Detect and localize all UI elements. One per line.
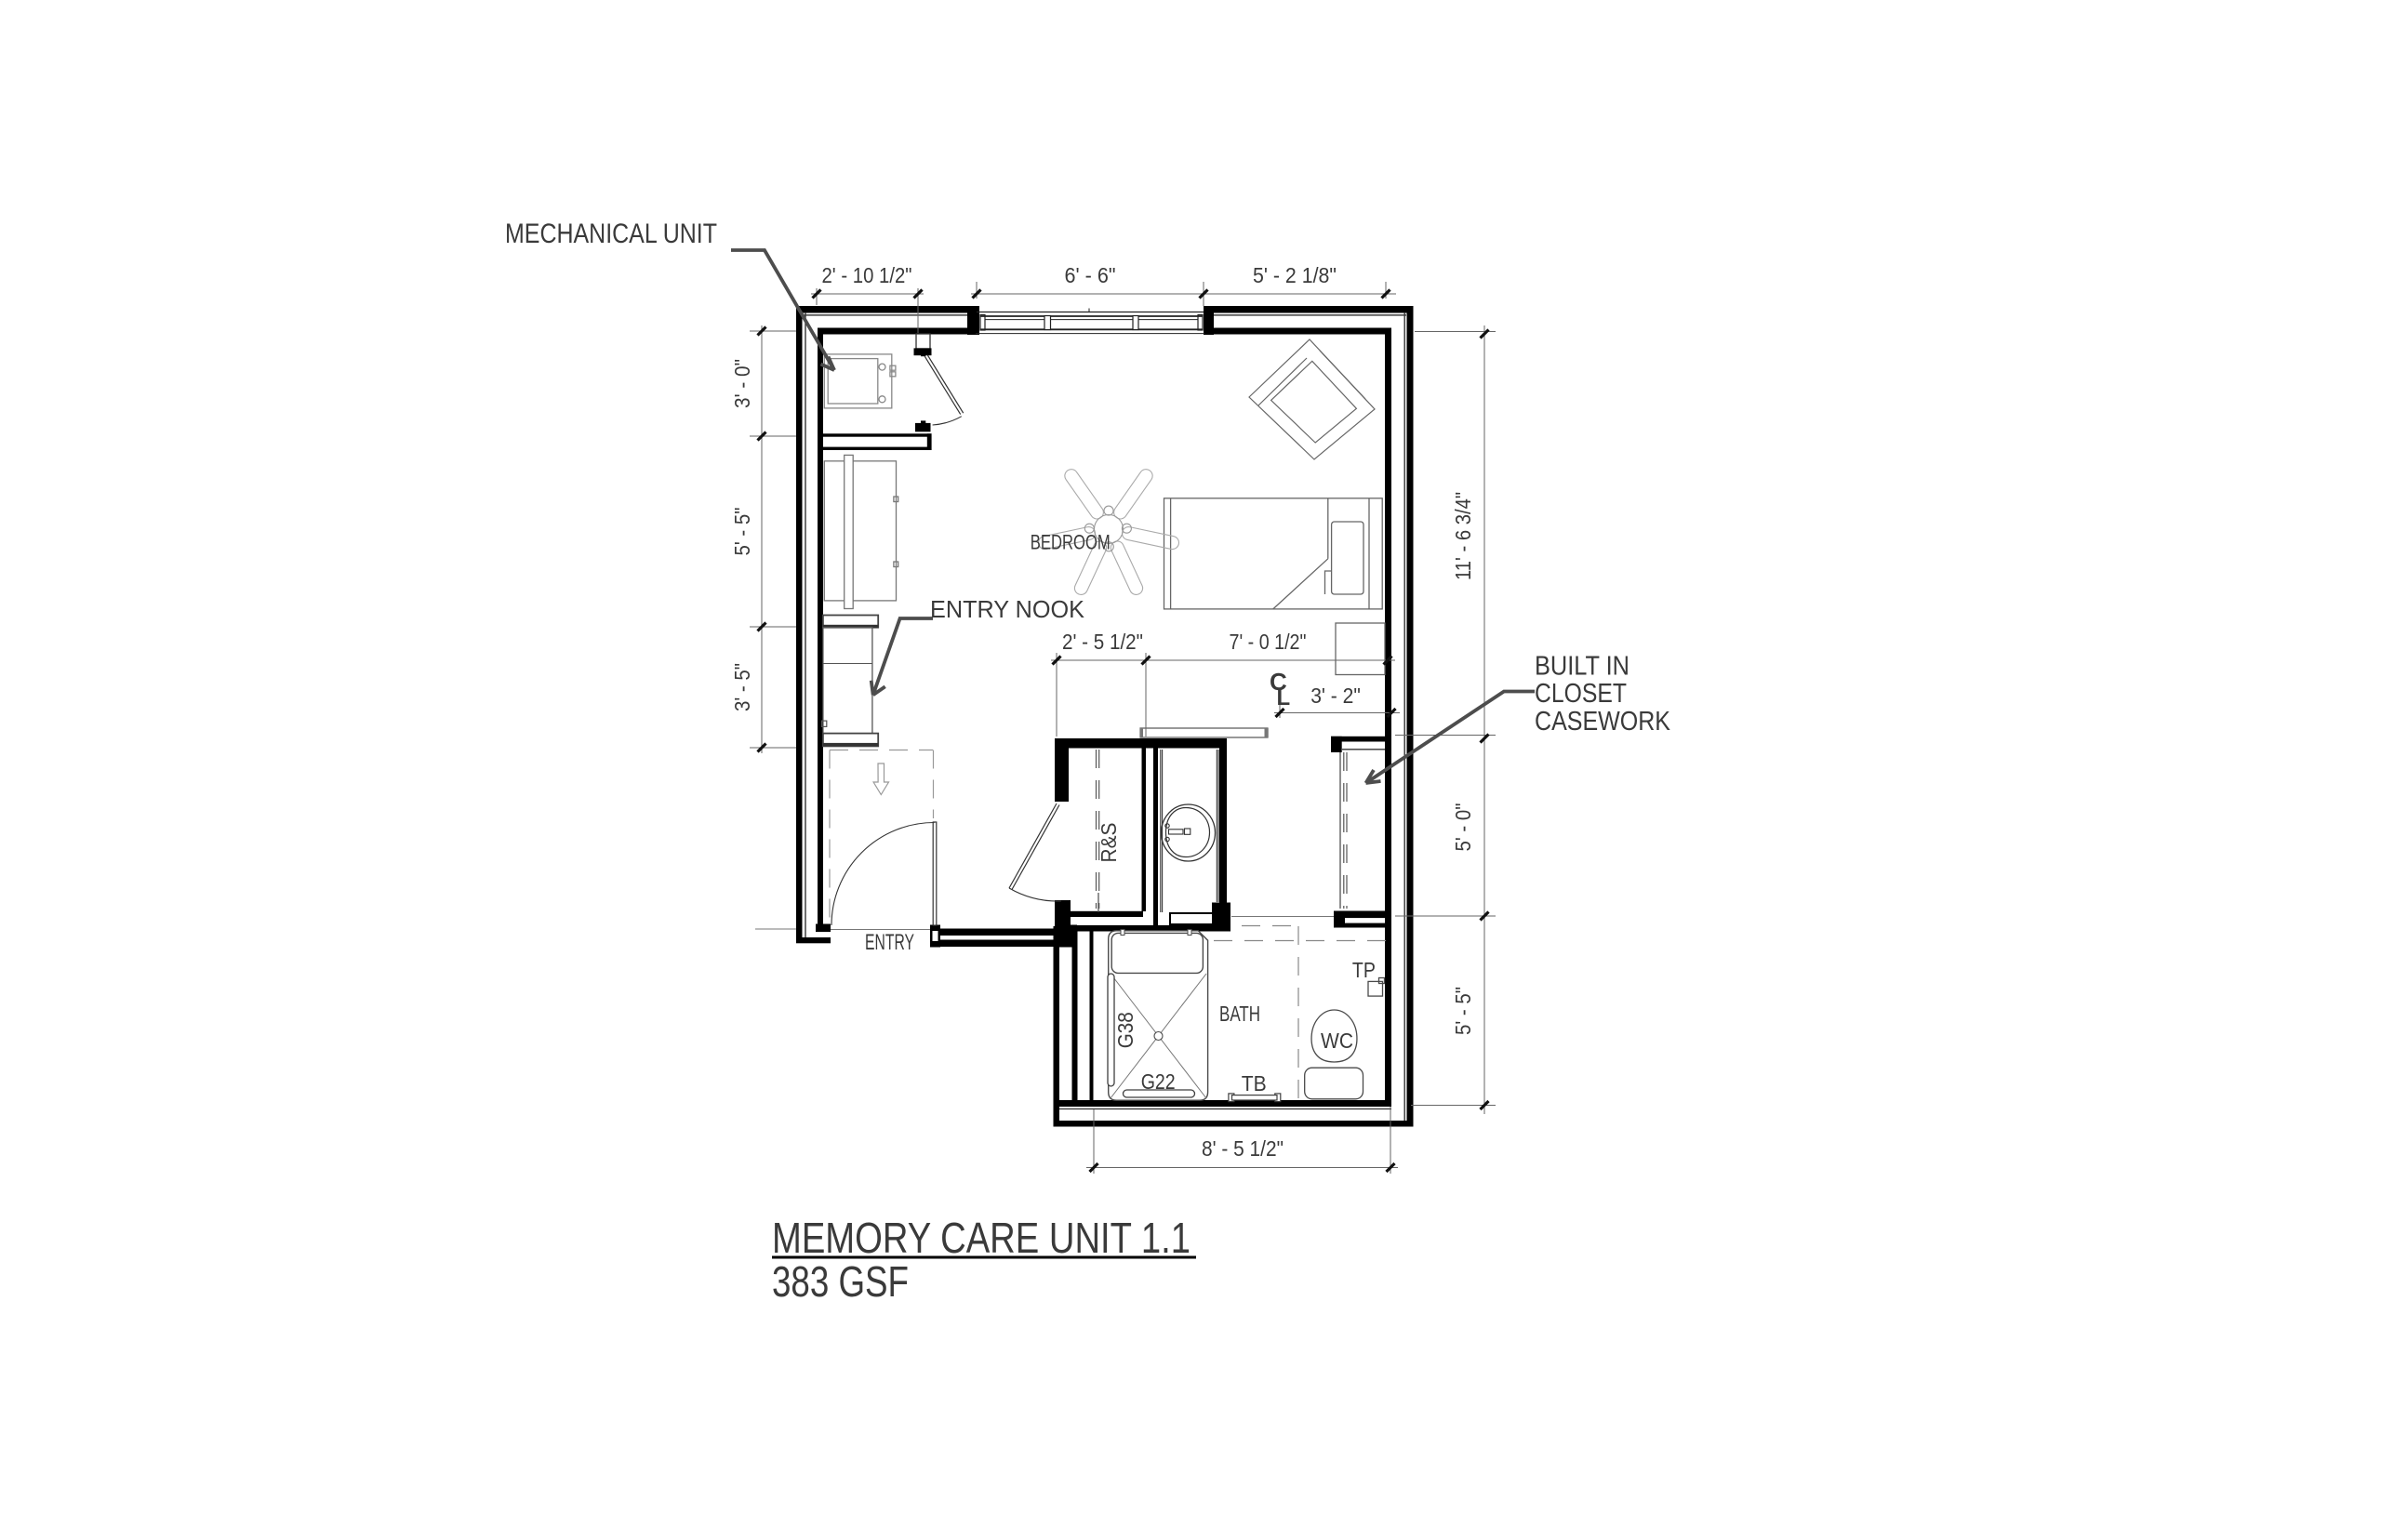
svg-text:5' - 5": 5' - 5" <box>730 508 754 556</box>
svg-text:TB: TB <box>1242 1071 1267 1095</box>
svg-text:3' - 2": 3' - 2" <box>1310 684 1361 708</box>
svg-text:6' - 6": 6' - 6" <box>1065 263 1116 287</box>
svg-text:BEDROOM: BEDROOM <box>1031 531 1111 554</box>
svg-text:3' - 5": 3' - 5" <box>730 663 754 711</box>
svg-text:5' - 5": 5' - 5" <box>1451 987 1475 1035</box>
svg-text:L: L <box>1277 685 1291 710</box>
svg-text:R&S: R&S <box>1097 823 1121 863</box>
svg-text:MEMORY CARE UNIT 1.1: MEMORY CARE UNIT 1.1 <box>772 1214 1190 1262</box>
svg-text:TP: TP <box>1352 958 1376 982</box>
svg-text:8' - 5 1/2": 8' - 5 1/2" <box>1202 1136 1284 1161</box>
svg-text:ENTRY: ENTRY <box>865 930 914 955</box>
svg-text:CASEWORK: CASEWORK <box>1535 707 1671 737</box>
svg-text:WC: WC <box>1321 1029 1353 1053</box>
svg-text:BUILT IN: BUILT IN <box>1535 652 1629 682</box>
svg-text:11' - 6 3/4": 11' - 6 3/4" <box>1451 492 1475 580</box>
svg-text:2' - 10 1/2": 2' - 10 1/2" <box>822 263 912 287</box>
svg-text:383 GSF: 383 GSF <box>772 1257 909 1306</box>
svg-text:G22: G22 <box>1141 1069 1176 1094</box>
svg-text:2' - 5 1/2": 2' - 5 1/2" <box>1062 630 1143 654</box>
svg-text:MECHANICAL UNIT: MECHANICAL UNIT <box>505 219 717 249</box>
svg-text:5' - 2 1/8": 5' - 2 1/8" <box>1253 263 1337 287</box>
svg-text:CLOSET: CLOSET <box>1535 679 1627 709</box>
svg-text:ENTRY NOOK: ENTRY NOOK <box>930 595 1085 623</box>
svg-text:BATH: BATH <box>1219 1002 1260 1026</box>
svg-text:5' - 0": 5' - 0" <box>1451 803 1475 852</box>
svg-text:7' - 0 1/2": 7' - 0 1/2" <box>1230 630 1307 654</box>
svg-text:G38: G38 <box>1113 1012 1137 1048</box>
svg-text:3' - 0": 3' - 0" <box>730 359 754 408</box>
